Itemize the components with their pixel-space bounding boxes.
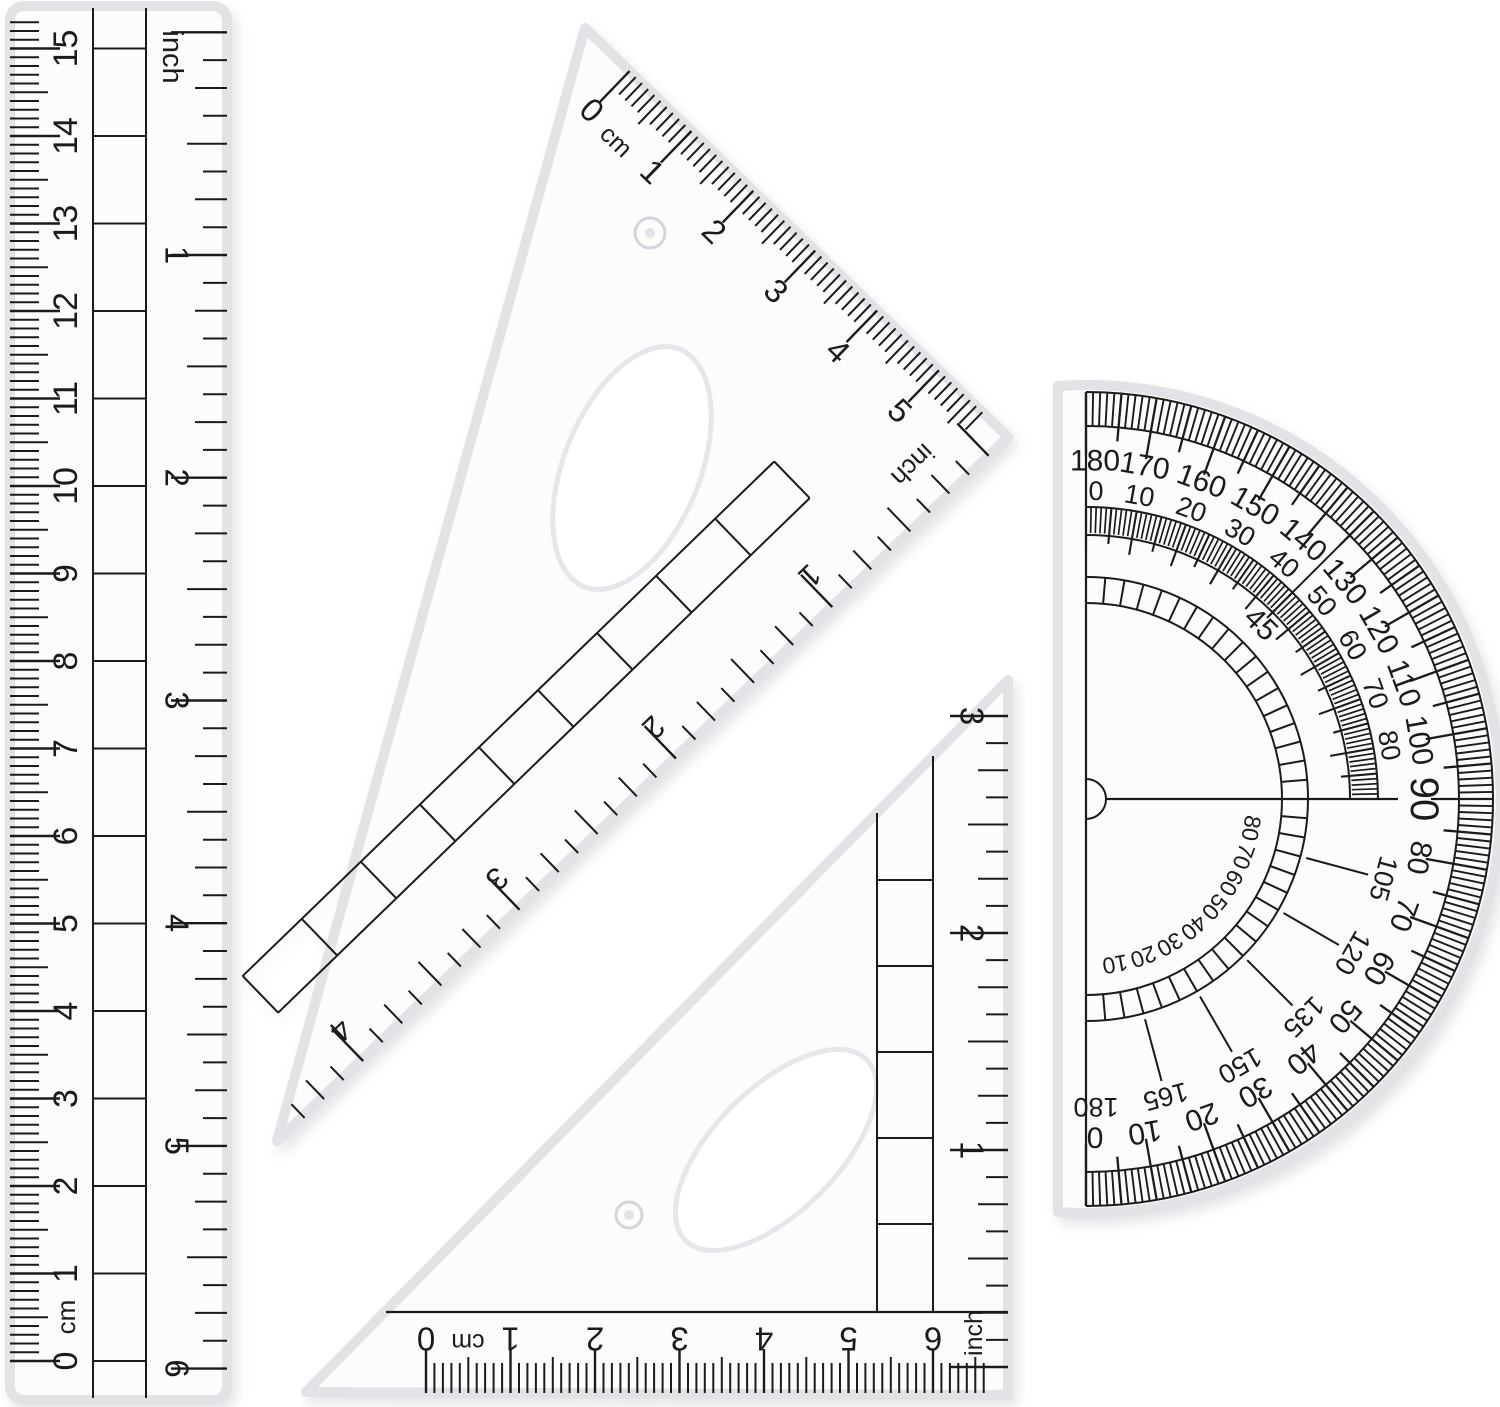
scale-number: 80 xyxy=(1372,728,1407,763)
scale-number: 3 xyxy=(47,1089,85,1108)
tick xyxy=(1091,507,1092,533)
scale-number: 2 xyxy=(159,469,196,487)
tick xyxy=(1352,789,1378,790)
tick xyxy=(1093,1172,1094,1206)
tick xyxy=(1459,812,1493,813)
scale-number: 4 xyxy=(159,914,196,932)
scale-number: 80 xyxy=(1400,838,1438,877)
tick xyxy=(1095,507,1096,533)
scale-number: 3 xyxy=(159,691,196,709)
scale-number: 80 xyxy=(1236,813,1266,843)
scale-number: 4 xyxy=(47,1002,85,1021)
scale-number: 10 xyxy=(47,467,85,505)
unit-label: cm xyxy=(451,1328,484,1356)
geometry-set: 0cm123456789101112131415inch123456 0cm12… xyxy=(0,0,1500,1407)
scale-number: 10 xyxy=(1122,478,1157,513)
scale-number: 1 xyxy=(501,1321,519,1358)
scale-number: 10 xyxy=(1100,949,1130,979)
product-photo: 0cm123456789101112131415inch123456 0cm12… xyxy=(0,0,1500,1407)
scale-number: 0 xyxy=(1088,476,1103,506)
scale-number: 180 xyxy=(1070,445,1120,478)
ruler: 0cm123456789101112131415inch123456 xyxy=(10,6,227,1400)
strip-line xyxy=(243,976,279,1013)
scale-number: 0 xyxy=(417,1321,435,1358)
scale-number: 5 xyxy=(159,1137,196,1155)
scale-number: 7 xyxy=(47,739,85,758)
scale-number: 14 xyxy=(47,117,85,155)
tick xyxy=(1099,1172,1100,1206)
tick xyxy=(1099,392,1100,426)
unit-label: inch xyxy=(156,30,188,83)
scale-number: 11 xyxy=(47,381,85,416)
scale-number: 2 xyxy=(586,1321,604,1358)
scale-number: 3 xyxy=(954,707,991,725)
mold-mark-dot xyxy=(645,228,655,238)
scale-number: 6 xyxy=(159,1359,196,1377)
protractor: 1801701601501401301201101009080706050403… xyxy=(1058,385,1500,1213)
scale-number: 1 xyxy=(47,1264,85,1283)
scale-number: 2 xyxy=(47,1177,85,1196)
scale-number: 3 xyxy=(670,1321,688,1358)
scale-number: 2 xyxy=(954,924,991,942)
scale-number: 0 xyxy=(1087,1121,1104,1154)
scale-number: 5 xyxy=(47,914,85,933)
tick xyxy=(1093,392,1094,426)
scale-number: 1 xyxy=(954,1141,991,1159)
unit-label: cm xyxy=(51,1300,81,1335)
tick xyxy=(1459,785,1493,786)
scale-number: 180 xyxy=(1073,1092,1118,1122)
scale-number: 6 xyxy=(924,1321,942,1358)
scale-number: 90 xyxy=(1402,777,1446,822)
scale-number: 4 xyxy=(755,1321,773,1358)
scale-number: 1 xyxy=(159,246,196,264)
unit-label: inch xyxy=(960,1310,988,1356)
scale-number: 9 xyxy=(47,564,85,583)
scale-number: 5 xyxy=(839,1321,857,1358)
scale-number: 15 xyxy=(47,30,85,68)
tick xyxy=(1459,806,1493,807)
scale-number: 6 xyxy=(47,827,85,846)
mold-mark-dot xyxy=(624,1210,634,1220)
scale-number: 0 xyxy=(47,1352,85,1371)
tick xyxy=(1459,792,1493,793)
tick xyxy=(1352,794,1378,795)
scale-number: 10 xyxy=(1125,1113,1164,1151)
scale-number: 8 xyxy=(47,652,85,671)
scale-number: 13 xyxy=(47,205,85,243)
scale-number: 12 xyxy=(47,292,85,330)
